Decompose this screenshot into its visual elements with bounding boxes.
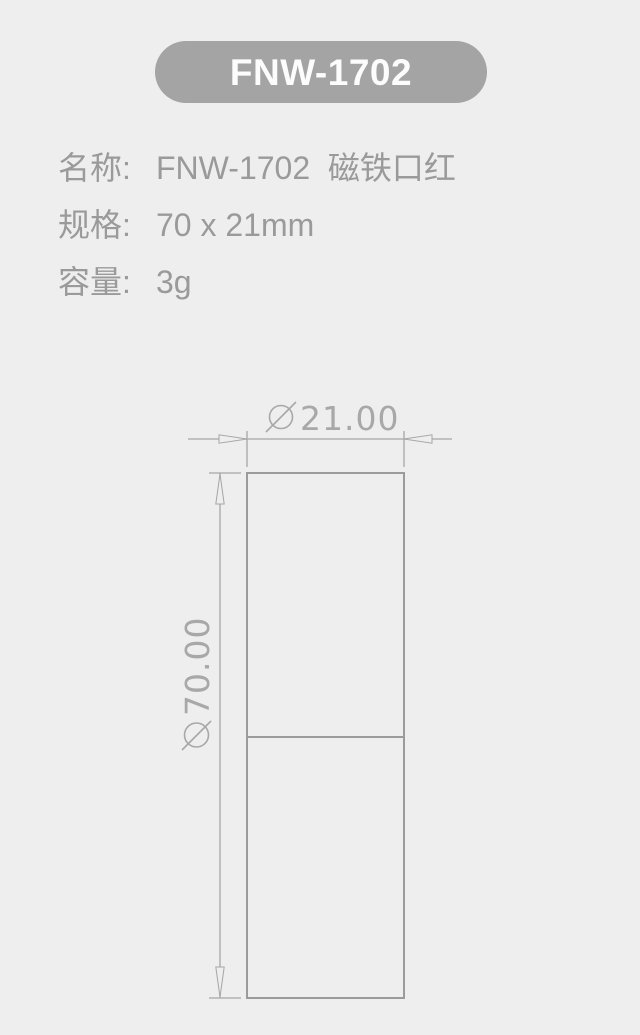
height-dimension: 70.00 — [178, 473, 241, 998]
lipstick-outline — [247, 473, 404, 998]
height-dimension-text: 70.00 — [178, 617, 217, 716]
width-dimension-text: 21.00 — [300, 399, 399, 438]
arrow-right-icon — [219, 435, 247, 443]
diameter-symbol-icon — [182, 721, 211, 750]
arrow-down-icon — [216, 967, 224, 997]
width-dimension: 21.00 — [188, 399, 452, 467]
diameter-symbol-icon — [266, 402, 296, 432]
product-spec-sheet: FNW-1702 名称: FNW-1702 磁铁口红 规格: 70 x 21mm… — [0, 0, 640, 1035]
arrow-left-icon — [404, 435, 432, 443]
arrow-up-icon — [216, 474, 224, 504]
technical-drawing: 21.00 70.00 — [0, 0, 640, 1035]
